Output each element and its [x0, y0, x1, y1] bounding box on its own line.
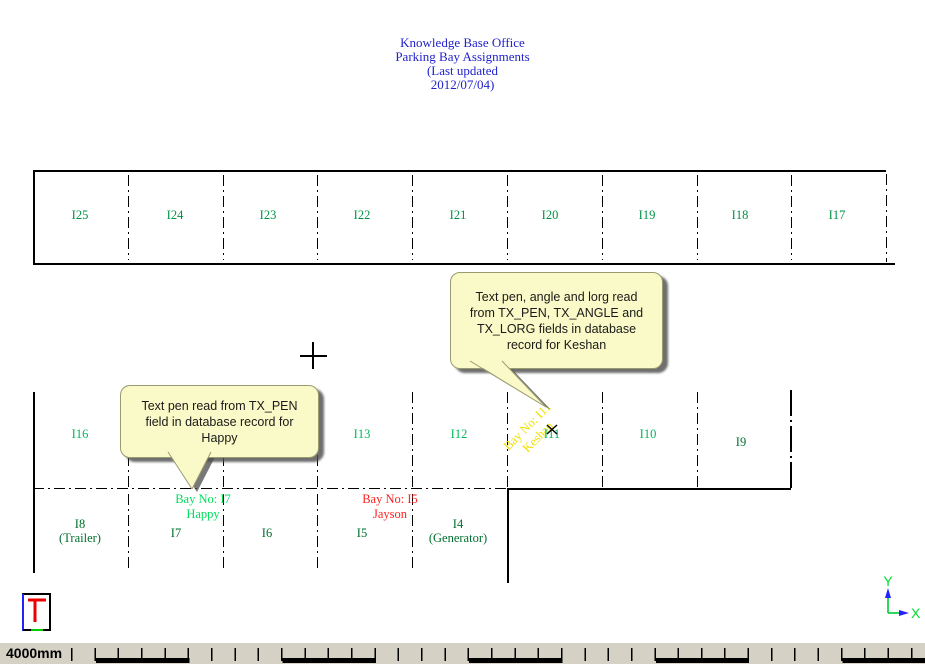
bay-label: I6 — [262, 527, 272, 540]
bay-label: I7 — [171, 527, 181, 540]
callout-note-keshan[interactable]: Text pen, angle and lorg read from TX_PE… — [450, 272, 663, 369]
cross-marker — [300, 342, 327, 369]
middle-row-left-edge — [33, 392, 35, 573]
bay-divider — [886, 174, 887, 262]
bottom-row-right-edge — [507, 488, 509, 583]
middle-row-bottom-solid — [507, 488, 791, 490]
callout-text-line: record for Keshan — [451, 337, 662, 353]
bay-label: I21 — [450, 209, 467, 222]
bay-divider — [317, 175, 318, 260]
axis-y-label: Y — [883, 573, 893, 589]
top-row-left-edge — [33, 170, 35, 264]
bay-tag-happy: Bay No: I7 Happy — [175, 492, 231, 521]
bay-label: I11 — [544, 428, 560, 441]
bay-tag-keshan: Bay No: I11 Keshan — [480, 379, 586, 485]
bay-label: I9 — [736, 436, 746, 449]
callout-text-line: Text pen, angle and lorg read — [451, 289, 662, 305]
bay-divider — [128, 175, 129, 260]
statusbar[interactable]: 4000mm — [0, 643, 925, 664]
callout-text-line: Happy — [121, 430, 318, 446]
bay-label: I8 (Trailer) — [59, 517, 101, 545]
callout-text-line: from TX_PEN, TX_ANGLE and — [451, 305, 662, 321]
bay-label: I24 — [167, 209, 184, 222]
bay-divider — [791, 175, 792, 260]
scale-label: 4000mm — [6, 645, 62, 661]
mini-drawing-icon[interactable] — [18, 590, 58, 634]
drawing-canvas[interactable]: Knowledge Base Office Parking Bay Assign… — [0, 0, 925, 664]
callout-text-line: Text pen read from TX_PEN — [121, 398, 318, 414]
bay-label: I25 — [72, 209, 89, 222]
bay-label: I5 — [357, 527, 367, 540]
bay-label: I19 — [639, 209, 656, 222]
bay-label: I20 — [542, 209, 559, 222]
bay-divider — [602, 392, 603, 488]
bay-divider — [412, 175, 413, 260]
axis-x-label: X — [911, 605, 921, 621]
bay-label: I12 — [451, 428, 468, 441]
bay-divider — [602, 175, 603, 260]
callout-note-happy[interactable]: Text pen read from TX_PEN field in datab… — [120, 385, 319, 458]
bay-divider — [223, 175, 224, 260]
title-line: Knowledge Base Office — [0, 36, 925, 50]
callout-text-line: TX_LORG fields in database — [451, 321, 662, 337]
bay-label: I18 — [732, 209, 749, 222]
bay-divider — [507, 175, 508, 260]
bay-label: I22 — [354, 209, 371, 222]
title-line: 2012/07/04) — [0, 78, 925, 92]
bay-label: I23 — [260, 209, 277, 222]
drawing-title: Knowledge Base Office Parking Bay Assign… — [0, 36, 925, 92]
top-row-bottom-edge — [33, 263, 895, 265]
bay-divider — [697, 392, 698, 488]
middle-row-bottom-dashed — [33, 488, 507, 489]
bay-divider — [128, 494, 129, 570]
callout-text-line: field in database record for — [121, 414, 318, 430]
title-line: (Last updated — [0, 64, 925, 78]
bay-label: I13 — [354, 428, 371, 441]
bay-label: I4 (Generator) — [429, 517, 487, 545]
middle-row-right-edge — [790, 390, 792, 488]
bay-label: I10 — [640, 428, 657, 441]
bay-tag-jayson: Bay No: I5 Jayson — [362, 492, 418, 521]
bay-label: I17 — [829, 209, 846, 222]
bay-label: I16 — [72, 428, 89, 441]
bay-divider — [412, 392, 413, 488]
title-line: Parking Bay Assignments — [0, 50, 925, 64]
bay-divider — [697, 175, 698, 260]
bay-divider — [317, 494, 318, 570]
axis-indicator: Y X — [855, 565, 925, 630]
top-row-top-edge — [33, 170, 886, 172]
ruler-bars — [96, 658, 925, 663]
